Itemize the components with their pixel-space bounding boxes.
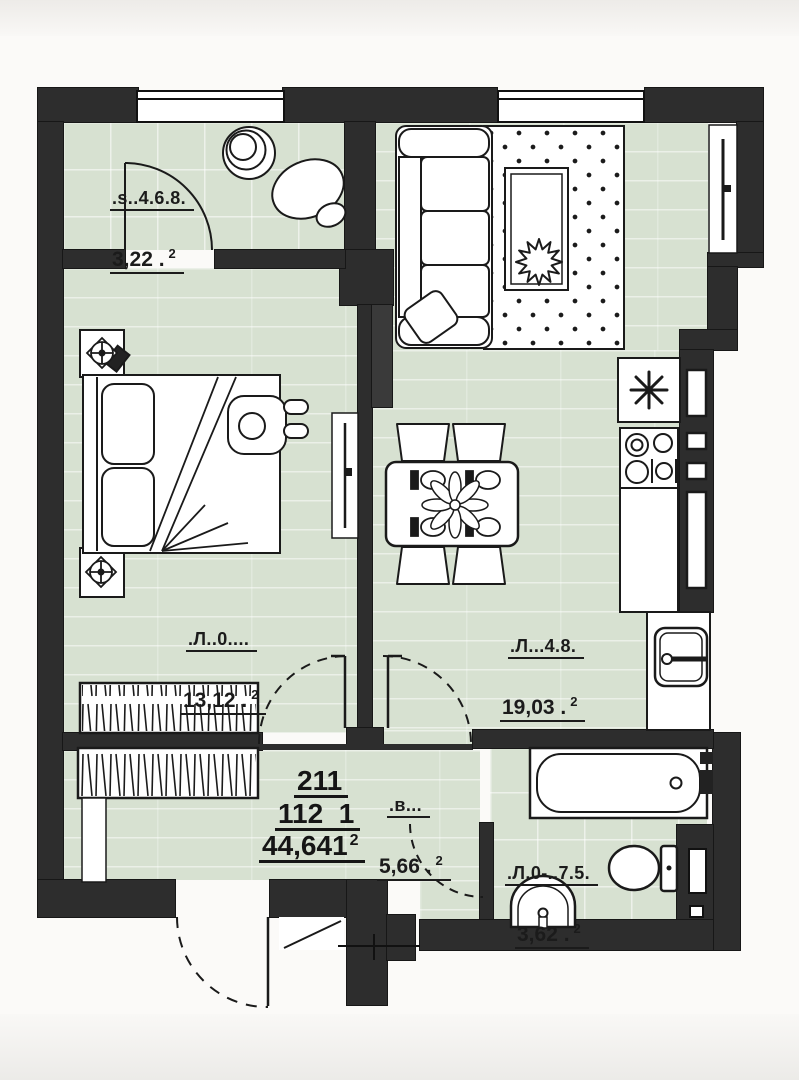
toilet	[609, 846, 677, 891]
bathtub	[530, 748, 713, 818]
sofa	[396, 126, 492, 348]
room-area: 19,03 .2	[500, 695, 585, 723]
apartment-total-area: 44,6412	[259, 831, 365, 863]
apartment-code: 112 1	[275, 799, 360, 831]
room-label-kitchen-living: .Л...4.8. 19,03 .2	[500, 600, 585, 758]
bedroom-sliding-door	[332, 413, 358, 538]
room-name: .Л..0....	[186, 629, 257, 652]
room-label-hall: .в... 5,66 .2	[377, 759, 451, 917]
cooktop-stove	[620, 428, 678, 488]
bed	[83, 375, 308, 553]
room-label-wc-top: .s..4.6.8. 3,22 .2	[110, 152, 194, 310]
entrance-door	[177, 917, 344, 1007]
flower-centerpiece-icon	[422, 472, 488, 538]
room-area: 3,62 .2	[515, 922, 589, 950]
room-area: 5,66 .2	[377, 854, 451, 882]
room-name: .в...	[387, 795, 430, 818]
room-area: 3,22 .2	[110, 247, 184, 275]
room-label-bedroom: .Л..0.... 13,12 .2	[181, 593, 266, 751]
room-area: 13,12 .2	[181, 688, 266, 716]
column-axis-marks	[338, 934, 420, 960]
room-name: .Л.0-..7.5.	[505, 863, 598, 886]
room-name: .s..4.6.8.	[110, 188, 194, 211]
floorplan-canvas: .s..4.6.8. 3,22 .2 .Л..0.... 13,12 .2 .Л…	[0, 0, 799, 1080]
kitchen-sink	[655, 628, 708, 686]
armchair-blob-icon	[263, 148, 353, 231]
room-label-bathroom: .Л.0-..7.5. 3,62 .2	[505, 827, 598, 985]
hall-double-door	[259, 656, 471, 744]
room-name: .Л...4.8.	[508, 636, 584, 659]
balcony-door	[709, 125, 737, 253]
kitchen-wall-windows	[687, 370, 706, 588]
cooktop-hood-icon	[631, 372, 667, 408]
apartment-number: 211	[294, 766, 348, 798]
washing-machine-icon	[223, 127, 275, 179]
